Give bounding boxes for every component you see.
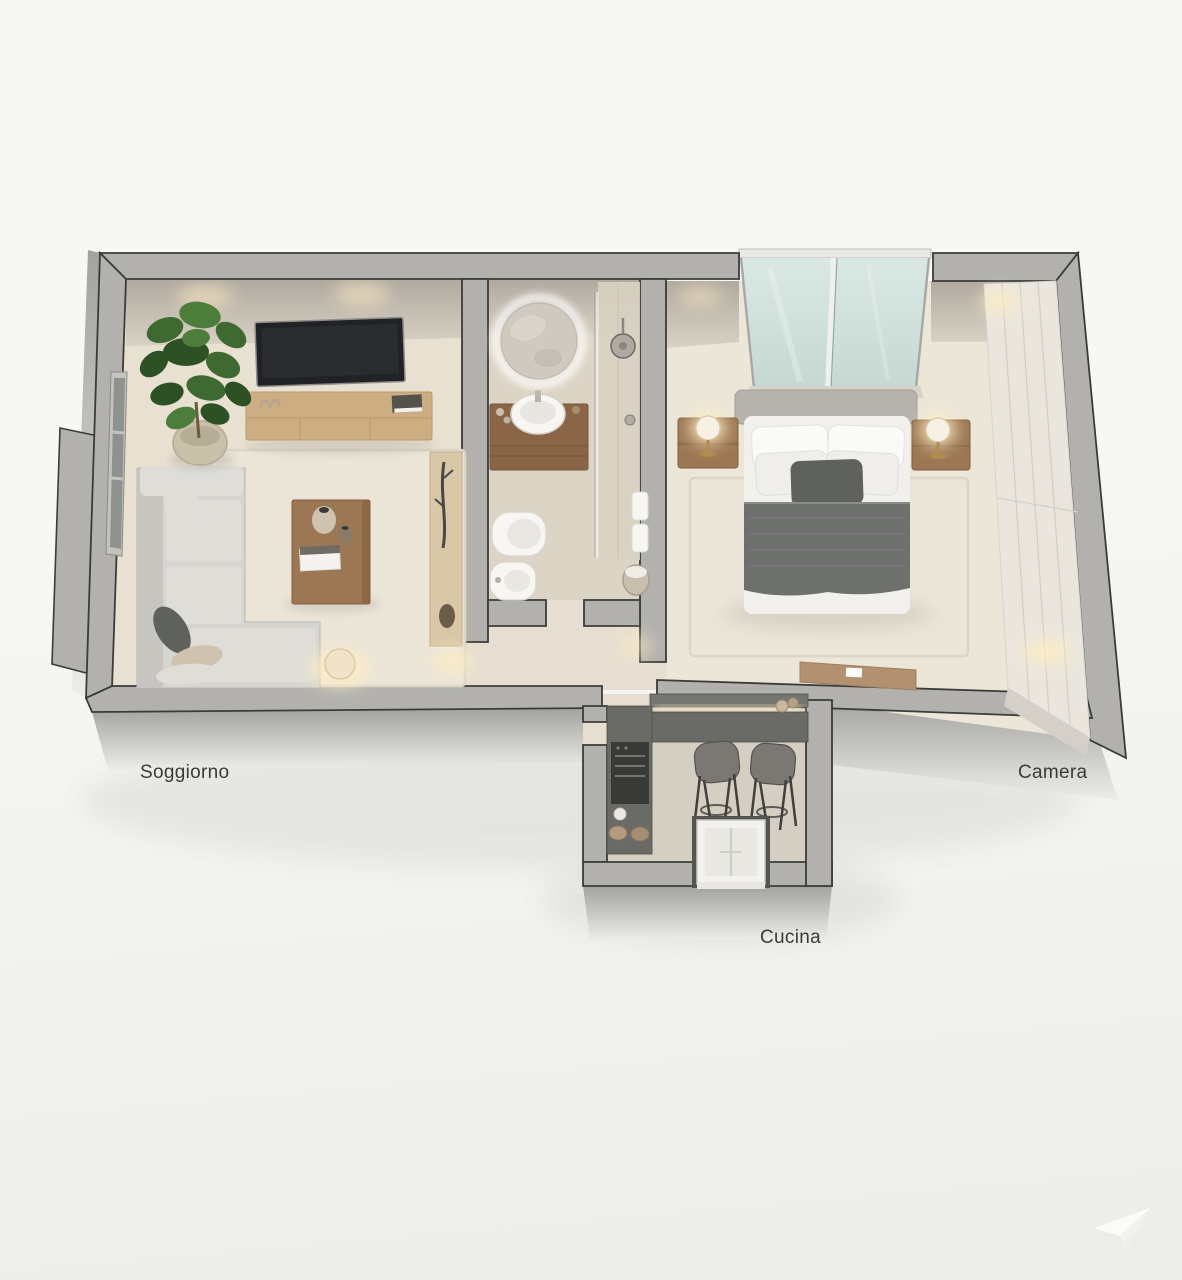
wardrobe-light-glow [980,291,1020,313]
tv-panel [261,324,399,379]
living-south-wall [86,686,602,712]
exterior-face-living-south [92,708,602,770]
bed [735,390,917,614]
floor-plan-svg [0,0,1182,1280]
bidet-basin [504,570,530,592]
watermark-logo [1094,1208,1150,1252]
sink-faucet [535,390,541,402]
bidet [490,562,536,600]
window-mullion [111,478,123,479]
oven [611,742,649,804]
kitchen-right-wall [806,700,832,886]
table-vase-mouth [319,507,329,513]
table-lamp-shade [926,418,950,442]
tv [255,317,405,386]
bedroom-window [739,249,931,398]
bath-south-wall-left [488,600,546,626]
bar-vase [776,700,788,712]
coffee-table [284,500,380,613]
bed-blanket [744,502,910,596]
ceiling-light-glow [678,286,722,306]
counter-bowl [631,827,649,841]
bidet-faucet [495,577,501,583]
bar-counter-top [650,712,808,742]
bar-counter [650,694,808,742]
kitchen-window [692,816,770,889]
window-mullion [112,432,124,433]
console-vase-dark [439,604,455,628]
desk-laptop [846,668,862,678]
mirror-reflection [534,349,562,367]
kitchen-south-wall-left [583,862,694,886]
living-room-label: Soggiorno [140,762,229,784]
round-mirror [496,298,582,384]
sink-basin [520,400,556,424]
table-lamp-shade [696,416,720,440]
counter-canister [614,808,626,820]
bath-south-wall-right [584,600,640,626]
wardrobe-light-glow [1022,639,1070,665]
kitchen-counter-left [607,706,652,854]
lamp-base [700,451,716,457]
hanging-towel [632,492,648,520]
table-vase-small-mouth [342,526,349,530]
tv-console [245,392,435,455]
shower-valve [625,415,635,425]
lamp-base [930,453,946,459]
kitchen-left-wall-stub [583,706,607,722]
window-sill [697,882,765,889]
ceiling-light-glow [334,282,390,306]
soap-bottle [504,417,511,424]
accent-pillow [790,459,864,507]
mirror-glass [501,303,577,379]
kitchen-label: Cucina [760,927,821,949]
kitchen-left-wall [583,745,607,862]
shower-head-center [619,342,627,350]
nightstand-right [912,414,970,470]
window-top-frame [739,249,931,258]
oven-knob [625,747,628,750]
soap-bottle [496,408,504,416]
bath-bedroom-wall [640,279,666,662]
top-wall-right [933,253,1078,281]
bar-vase [788,698,798,708]
soap-bottle [572,406,580,414]
top-wall-left [100,253,739,279]
counter-bowl [609,826,627,840]
sofa-back-left [137,468,163,688]
hanging-towel [632,524,648,552]
console-light-pool [432,649,472,675]
oven-knob [617,747,620,750]
lamp-shade [325,649,355,679]
toilet-seat [507,519,541,549]
nightstand-left [678,412,738,468]
towel-stool-top [625,566,647,578]
coffee-table-edge [362,500,370,604]
toilet [492,512,546,556]
sofa-pillow [243,659,297,677]
bedroom-label: Camera [1018,762,1087,784]
hallway-light-pool [620,635,652,657]
floor-plan-render: Soggiorno Camera Cucina [0,0,1182,1280]
